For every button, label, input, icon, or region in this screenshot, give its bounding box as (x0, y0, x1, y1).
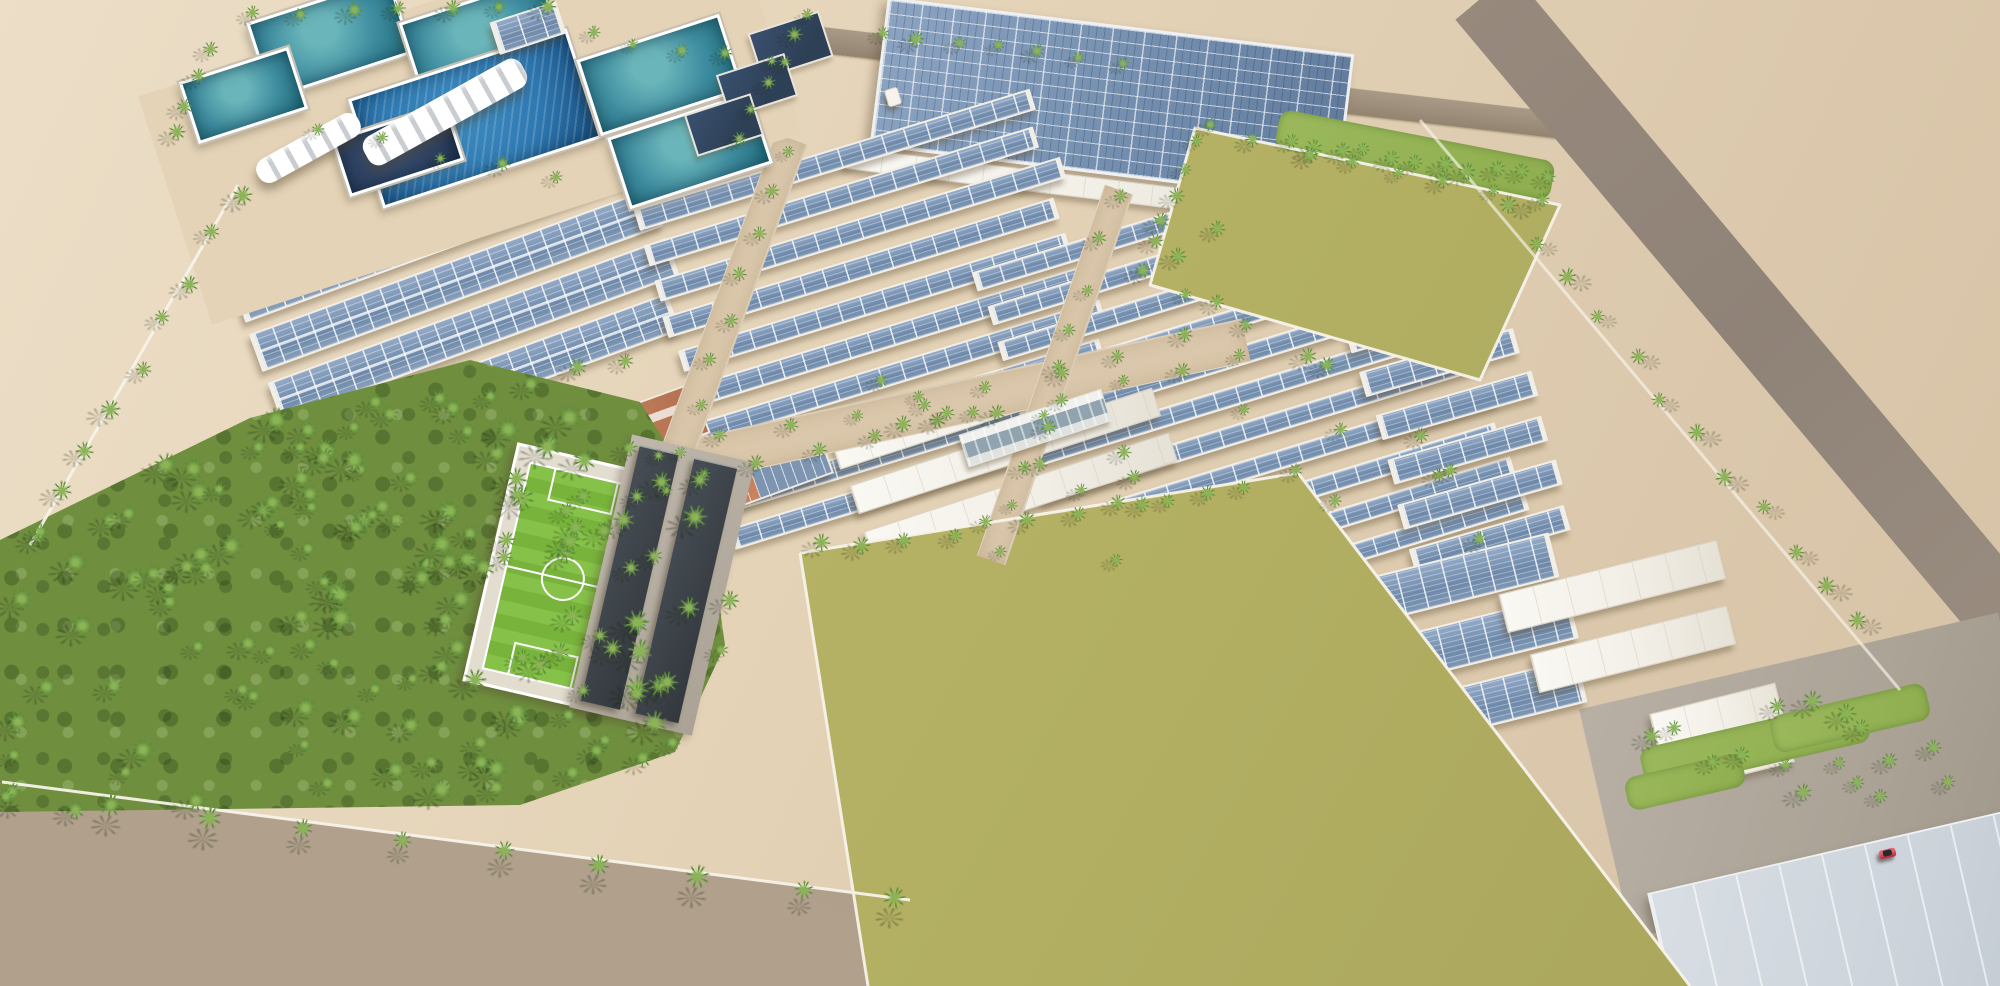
palm-tree (1688, 423, 1707, 442)
palm-tree (1383, 150, 1400, 167)
palm-tree (1535, 192, 1550, 207)
palm-tree (1333, 422, 1348, 437)
palm-tree (565, 517, 586, 538)
palm-tree (623, 609, 649, 635)
palm-tree (1178, 163, 1192, 177)
palm-tree (563, 763, 582, 782)
palm-tree (211, 481, 227, 497)
palm-tree (411, 566, 433, 588)
palm-tree (245, 688, 262, 705)
palm-tree (952, 36, 967, 51)
palm-tree (702, 352, 717, 367)
palm-tree (326, 655, 342, 671)
palm-tree (1233, 348, 1246, 361)
palm-tree (1442, 462, 1459, 479)
palm-tree (538, 0, 557, 16)
palm-tree (1471, 531, 1488, 548)
palm-tree (1642, 727, 1660, 745)
palm-tree (1134, 262, 1151, 279)
palm-tree (1237, 403, 1250, 416)
palm-tree (366, 393, 385, 412)
palm-tree (633, 748, 653, 768)
palm-tree (723, 313, 738, 328)
palm-tree (1832, 756, 1847, 771)
palm-tree (588, 854, 610, 876)
palm-tree (627, 38, 640, 51)
palm-tree (117, 764, 133, 780)
palm-tree (459, 422, 476, 439)
palm-tree (624, 674, 650, 700)
palm-tree (52, 480, 72, 500)
palm-tree (587, 25, 601, 39)
palm-tree (988, 404, 1006, 422)
palm-tree (1209, 220, 1226, 237)
palm-tree (720, 590, 740, 610)
palm-tree (304, 499, 320, 515)
palm-tree (252, 499, 275, 522)
palm-tree (472, 556, 496, 580)
palm-tree (417, 554, 437, 574)
palm-tree (549, 170, 563, 184)
palm-tree (345, 517, 364, 536)
palm-tree (351, 507, 377, 533)
palm-tree (1651, 392, 1667, 408)
palm-tree (1147, 233, 1163, 249)
palm-tree (390, 0, 406, 16)
palm-tree (388, 511, 405, 528)
palm-tree (160, 592, 179, 611)
palm-tree (190, 638, 207, 655)
palm-tree (158, 577, 179, 598)
palm-tree (1940, 774, 1956, 790)
palm-tree (176, 556, 198, 578)
palm-tree (100, 510, 121, 531)
palm-tree (794, 880, 814, 900)
palm-tree (273, 517, 288, 532)
palm-tree (1407, 154, 1423, 170)
palm-tree (690, 470, 710, 490)
palm-tree (1116, 444, 1132, 460)
palm-tree (32, 523, 49, 540)
palm-tree (301, 635, 320, 654)
palm-tree (364, 507, 381, 524)
palm-tree (717, 45, 733, 61)
palm-tree (641, 710, 668, 737)
palm-tree (947, 528, 963, 544)
palm-tree (2, 782, 22, 802)
palm-tree (345, 1, 364, 20)
palm-tree (330, 584, 352, 606)
palm-tree (471, 752, 492, 773)
palm-tree (602, 638, 623, 659)
palm-tree (1134, 496, 1151, 513)
palm-tree (1110, 494, 1127, 511)
palm-tree (550, 642, 570, 662)
palm-tree (505, 700, 529, 724)
palm-tree (180, 275, 199, 294)
palm-tree (154, 309, 171, 326)
palm-tree (1788, 544, 1805, 561)
palm-tree (1081, 284, 1095, 298)
palm-tree (456, 549, 477, 570)
palm-tree (1116, 57, 1129, 70)
palm-tree (435, 499, 461, 525)
palm-tree (28, 527, 48, 547)
palm-tree (514, 649, 531, 666)
palm-tree (732, 266, 748, 282)
palm-tree (1051, 359, 1067, 375)
palm-tree (894, 415, 912, 433)
palm-tree (486, 442, 508, 464)
palm-tree (482, 388, 498, 404)
palm-tree (431, 656, 452, 677)
palm-tree (422, 753, 441, 772)
palm-tree (1018, 511, 1036, 529)
palm-tree (1850, 775, 1865, 790)
palm-tree (459, 549, 481, 571)
palm-tree (1029, 43, 1045, 59)
palm-tree (197, 806, 222, 831)
palm-tree (393, 831, 412, 850)
palm-tree (764, 183, 780, 199)
palm-tree (429, 777, 454, 802)
palm-tree (1540, 169, 1556, 185)
palm-tree (328, 605, 354, 631)
palm-tree (555, 543, 576, 564)
palm-tree (367, 681, 383, 697)
palm-tree (659, 484, 672, 497)
palm-tree (497, 531, 515, 549)
palm-tree (811, 442, 828, 459)
palm-tree (1062, 323, 1076, 337)
palm-tree (1152, 212, 1169, 229)
palm-tree (1489, 160, 1506, 177)
layer-palms (0, 0, 2000, 986)
palm-tree (297, 737, 312, 752)
palm-tree (629, 488, 645, 504)
palm-tree (645, 547, 663, 565)
palm-tree (401, 468, 420, 487)
palm-tree (494, 840, 515, 861)
palm-tree (1209, 294, 1226, 311)
palm-tree (678, 596, 700, 618)
palm-tree (674, 43, 689, 58)
palm-tree (300, 540, 316, 556)
palm-tree (321, 443, 338, 460)
palm-tree (1848, 611, 1867, 630)
palm-tree (443, 398, 463, 418)
palm-tree (342, 704, 366, 728)
palm-tree (617, 353, 633, 369)
palm-tree (994, 545, 1007, 558)
palm-tree (430, 389, 448, 407)
palm-tree (1392, 166, 1406, 180)
palm-tree (189, 542, 213, 566)
palm-tree (1881, 752, 1898, 769)
palm-tree (912, 390, 925, 403)
palm-tree (444, 0, 462, 17)
palm-tree (783, 417, 799, 433)
palm-tree (1070, 506, 1086, 522)
palm-tree (1778, 757, 1794, 773)
palm-tree (556, 404, 583, 431)
palm-tree (1160, 493, 1175, 508)
palm-tree (1169, 247, 1187, 265)
palm-tree (1110, 349, 1125, 364)
palm-tree (190, 68, 207, 85)
palm-tree (234, 681, 251, 698)
palm-tree (1457, 162, 1476, 181)
palm-tree (298, 420, 318, 440)
palm-tree (487, 778, 506, 797)
palm-tree (315, 438, 334, 457)
palm-tree (341, 447, 368, 474)
palm-tree (622, 559, 640, 577)
palm-tree (70, 614, 95, 639)
palm-tree (1040, 419, 1056, 435)
palm-tree (664, 734, 681, 751)
palm-tree (291, 606, 313, 628)
palm-tree (1558, 267, 1577, 286)
palm-tree (685, 864, 710, 889)
palm-tree (1126, 469, 1142, 485)
palm-tree (263, 407, 289, 433)
palm-tree (647, 673, 672, 698)
palm-tree (1199, 485, 1215, 501)
palm-tree (1630, 348, 1647, 365)
palm-tree (168, 123, 186, 141)
palm-tree (1704, 754, 1720, 770)
palm-tree (250, 439, 266, 455)
palm-tree (144, 564, 163, 583)
palm-tree (560, 706, 577, 723)
palm-tree (185, 790, 207, 812)
palm-tree (10, 587, 34, 611)
palm-tree (1328, 493, 1342, 507)
palm-tree (1038, 409, 1050, 421)
palm-tree (218, 533, 244, 559)
palm-tree (992, 38, 1005, 51)
palm-tree (122, 566, 149, 593)
palm-tree (1434, 172, 1451, 189)
palm-tree (576, 683, 591, 698)
palm-tree (1794, 783, 1813, 802)
palm-tree (1113, 188, 1128, 203)
palm-tree (1513, 163, 1529, 179)
palm-tree (656, 671, 679, 694)
palm-tree (300, 484, 320, 504)
palm-tree (375, 131, 388, 144)
palm-tree (587, 741, 606, 760)
palm-tree (559, 530, 582, 553)
palm-tree (182, 457, 206, 481)
palm-tree (752, 226, 767, 241)
palm-tree (1666, 720, 1682, 736)
palm-tree (747, 454, 765, 472)
palm-tree (1072, 51, 1085, 64)
palm-tree (1284, 133, 1300, 149)
palm-tree (1318, 356, 1335, 373)
palm-tree (874, 373, 889, 388)
palm-tree (429, 531, 455, 557)
palm-tree (1733, 746, 1751, 764)
palm-tree (100, 399, 122, 421)
palm-tree (867, 428, 883, 444)
palm-tree (782, 145, 795, 158)
palm-tree (1873, 788, 1888, 803)
palm-tree (99, 793, 123, 817)
palm-tree (291, 467, 312, 488)
palm-tree (372, 496, 393, 517)
palm-tree (461, 524, 479, 542)
palm-tree (508, 709, 530, 731)
palm-tree (1356, 142, 1370, 156)
palm-tree (65, 800, 86, 821)
palm-tree (1006, 499, 1018, 511)
palm-tree (928, 412, 945, 429)
palm-tree (238, 633, 258, 653)
palm-tree (1032, 456, 1048, 472)
palm-tree (494, 155, 511, 172)
palm-tree (568, 357, 587, 376)
palm-tree (346, 419, 362, 435)
palm-tree (713, 642, 729, 658)
palm-tree (1769, 697, 1786, 714)
palm-tree (63, 550, 88, 575)
palm-tree (262, 492, 283, 513)
palm-tree (75, 441, 95, 461)
palm-tree (651, 471, 673, 493)
palm-tree (440, 501, 460, 521)
palm-tree (851, 409, 864, 422)
palm-tree (505, 467, 528, 490)
palm-tree (761, 75, 776, 90)
palm-tree (104, 676, 124, 696)
palm-tree (591, 627, 608, 644)
palm-tree (682, 504, 709, 531)
palm-tree (712, 427, 728, 443)
palm-tree (1117, 374, 1130, 387)
palm-tree (521, 374, 541, 394)
palm-tree (917, 398, 932, 413)
palm-tree (293, 818, 313, 838)
palm-tree (385, 759, 408, 782)
palm-tree (186, 479, 211, 504)
palm-tree (1817, 576, 1837, 596)
palm-tree (381, 405, 399, 423)
palm-tree (1190, 134, 1203, 147)
palm-tree (1238, 317, 1254, 333)
palm-tree (311, 123, 324, 136)
palm-tree (496, 548, 514, 566)
palm-tree (594, 521, 614, 541)
palm-tree (294, 696, 317, 719)
palm-tree (939, 405, 955, 421)
palm-tree (6, 710, 30, 734)
palm-tree (1054, 365, 1071, 382)
palm-tree (232, 185, 253, 206)
palm-tree (131, 738, 154, 761)
palm-tree (978, 514, 993, 529)
palm-tree (492, 0, 506, 14)
palm-tree (1109, 553, 1123, 567)
palm-tree (1431, 467, 1447, 483)
palm-tree (1179, 288, 1192, 301)
palm-tree (620, 439, 638, 457)
palm-tree (812, 533, 831, 552)
palm-tree (534, 433, 561, 460)
palm-tree (630, 614, 647, 631)
palm-tree (766, 55, 778, 67)
palm-tree (674, 446, 687, 459)
palm-tree (1436, 155, 1454, 173)
palm-tree (544, 433, 559, 448)
palm-tree (446, 636, 469, 659)
palm-tree (801, 8, 814, 21)
palm-tree (1802, 690, 1824, 712)
palm-tree (449, 587, 473, 611)
palm-tree (744, 103, 757, 116)
palm-tree (1715, 468, 1734, 487)
palm-tree (471, 733, 490, 752)
palm-tree (292, 439, 308, 455)
palm-tree (154, 452, 178, 476)
palm-tree (509, 486, 526, 503)
palm-tree (876, 26, 891, 41)
palm-tree (245, 5, 260, 20)
palm-tree (529, 653, 552, 676)
palm-tree (1852, 719, 1870, 737)
palm-tree (1299, 347, 1317, 365)
palm-tree (1345, 154, 1360, 169)
palm-tree (483, 756, 509, 782)
palm-tree (1413, 427, 1430, 444)
palm-tree (697, 467, 711, 481)
palm-tree (353, 462, 368, 477)
palm-tree (1091, 230, 1107, 246)
palm-tree (1236, 480, 1251, 495)
palm-tree (6, 747, 22, 763)
palm-tree (895, 532, 912, 549)
palm-tree (1168, 187, 1185, 204)
palm-tree (1529, 236, 1545, 252)
palm-tree (1499, 195, 1518, 214)
palm-tree (907, 30, 925, 48)
palm-tree (1304, 139, 1323, 158)
palm-tree (786, 26, 803, 43)
aerial-rendering-scene: Aerial rendering of a walled desert eco-… (0, 0, 2000, 986)
palm-tree (1301, 146, 1318, 163)
palm-tree (1017, 460, 1032, 475)
palm-tree (1288, 463, 1303, 478)
palm-tree (509, 485, 535, 511)
palm-tree (119, 504, 138, 523)
palm-tree (202, 41, 218, 57)
palm-tree (312, 447, 334, 469)
palm-tree (262, 643, 278, 659)
palm-tree (732, 131, 747, 146)
palm-tree (883, 886, 906, 909)
palm-tree (435, 609, 456, 630)
palm-tree (400, 714, 423, 737)
palm-tree (1590, 309, 1605, 324)
palm-tree (562, 605, 583, 626)
palm-tree (978, 380, 992, 394)
palm-tree (572, 448, 597, 473)
palm-tree (613, 509, 635, 531)
palm-tree (695, 398, 709, 412)
palm-tree (1174, 362, 1190, 378)
